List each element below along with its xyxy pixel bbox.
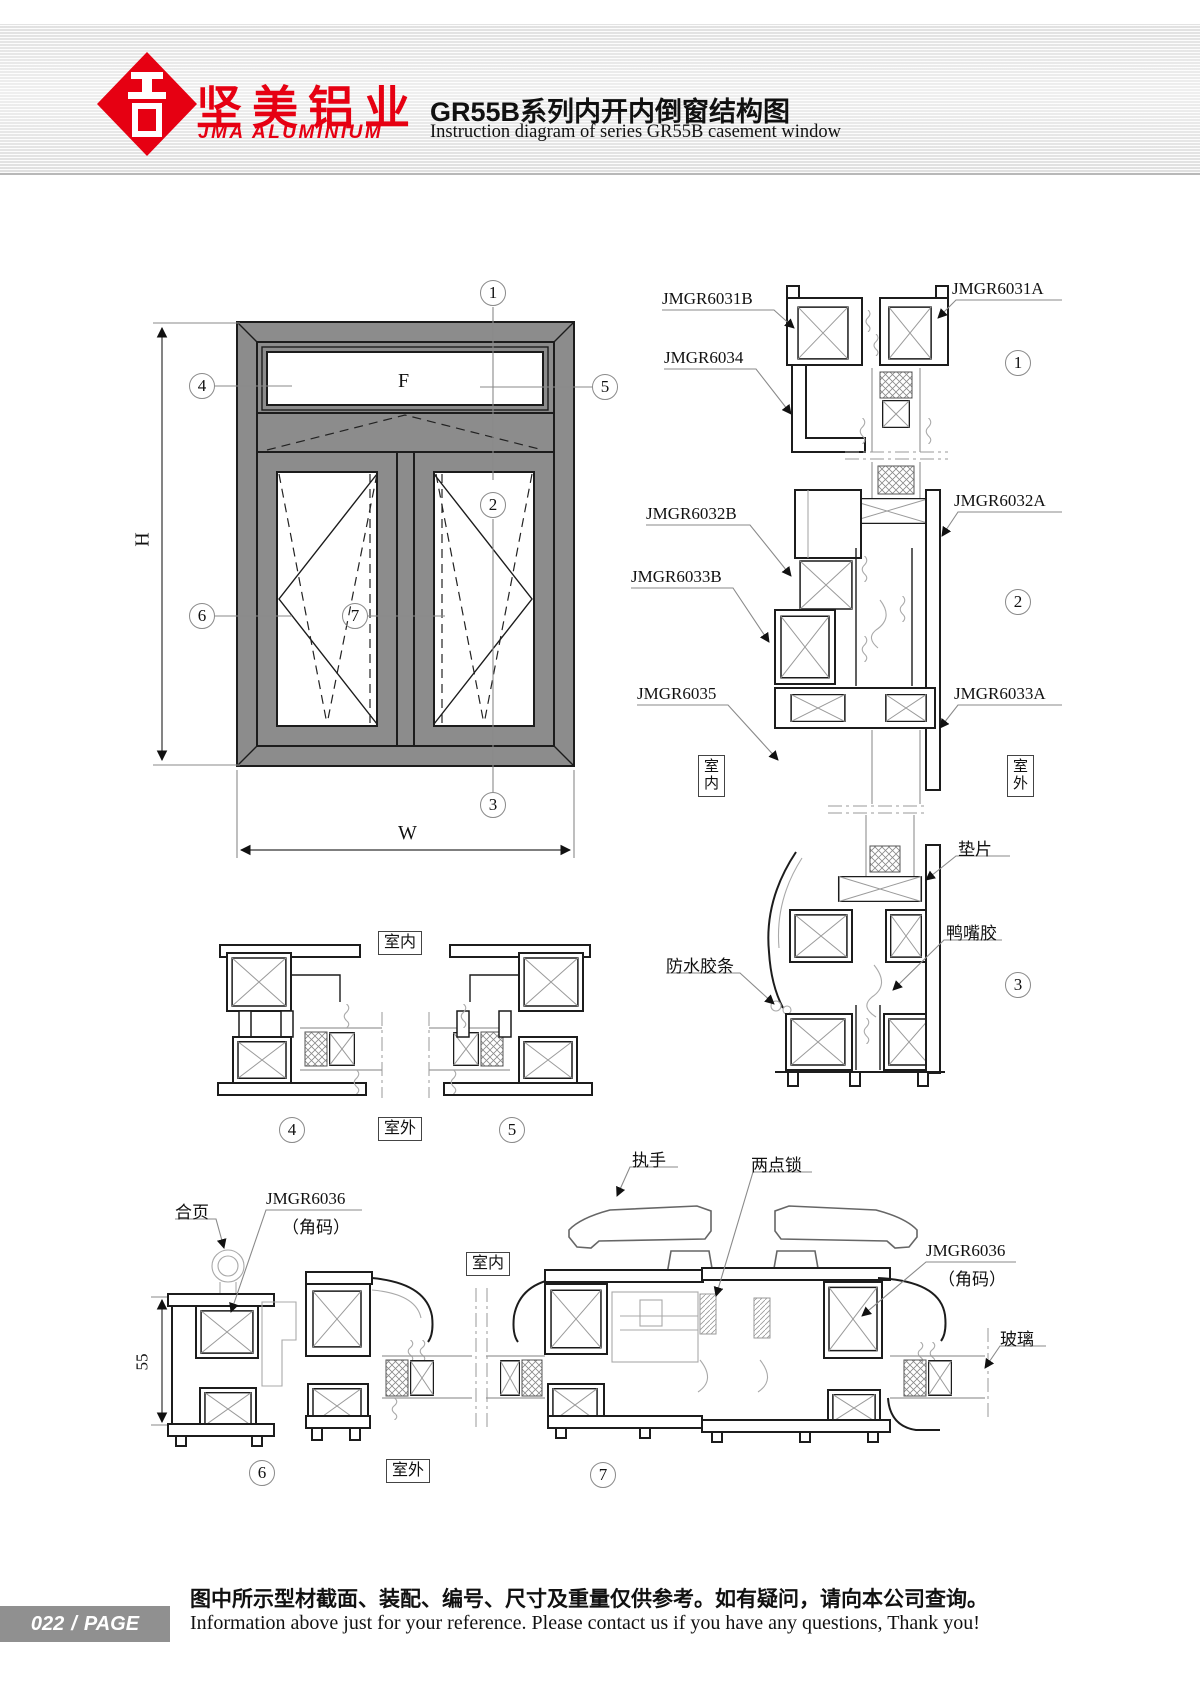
hinge-barrel xyxy=(212,1250,244,1282)
part-label-jmgr6036: JMGR6036 xyxy=(266,1189,345,1209)
outdoor-label: 室外 xyxy=(386,1459,430,1483)
part-label-jmgr6033b: JMGR6033B xyxy=(631,567,722,587)
section-5-number: 5 xyxy=(499,1117,525,1143)
section-1-drawing xyxy=(787,286,948,452)
dim-width-label: W xyxy=(398,822,417,845)
section-7-drawing xyxy=(486,1206,985,1442)
outdoor-label: 室外 xyxy=(378,1117,422,1141)
callout-4: 4 xyxy=(189,373,215,399)
page-label: PAGE xyxy=(84,1613,139,1636)
center-gasket xyxy=(871,600,886,648)
diagram-canvas xyxy=(0,0,1200,1697)
part-label-jmgr6031a: JMGR6031A xyxy=(952,279,1044,299)
left-sash-glass xyxy=(277,472,377,726)
part-label-jmgr6031b: JMGR6031B xyxy=(662,289,753,309)
part-label-jmgr6036: JMGR6036 xyxy=(926,1241,1005,1261)
callout-3: 3 xyxy=(480,792,506,818)
part-label-jmgr6035: JMGR6035 xyxy=(637,684,716,704)
part-label-corner-sub: （角码） xyxy=(282,1213,350,1238)
part-label-gasket: 垫片 xyxy=(958,835,992,860)
sash-cover-curve xyxy=(372,1278,433,1342)
section-5-drawing xyxy=(429,945,592,1095)
part-label-hinge: 合页 xyxy=(175,1198,209,1223)
callout-5: 5 xyxy=(592,374,618,400)
callout-1: 1 xyxy=(480,280,506,306)
lock-housing xyxy=(612,1292,698,1362)
part-label-jmgr6033a: JMGR6033A xyxy=(954,684,1046,704)
part-label-glass: 玻璃 xyxy=(1000,1325,1034,1350)
indoor-label: 室内 xyxy=(698,755,725,797)
indoor-label: 室内 xyxy=(378,931,422,955)
callout-7: 7 xyxy=(342,603,368,629)
page-number: 022 xyxy=(31,1613,64,1636)
footer-note-cn: 图中所示型材截面、装配、编号、尺寸及重量仅供参考。如有疑问，请向本公司查询。 xyxy=(190,1583,988,1613)
part-label-waterproof: 防水胶条 xyxy=(666,952,734,977)
corner-connector xyxy=(262,1302,296,1386)
outdoor-label: 室外 xyxy=(1007,755,1034,797)
section-2-drawing xyxy=(775,462,940,804)
indoor-label: 室内 xyxy=(466,1252,510,1276)
section-2-number: 2 xyxy=(1005,589,1031,615)
footer-note-en: Information above just for your referenc… xyxy=(190,1612,980,1635)
lock-point xyxy=(700,1294,716,1334)
section-4-number: 4 xyxy=(279,1117,305,1143)
page-number-badge: 022 / PAGE xyxy=(0,1606,170,1642)
catalog-page: 坚美铝业 JMA ALUMINIUM GR55B系列内开内倒窗结构图 Instr… xyxy=(0,0,1200,1697)
part-label-two-point-lock: 两点锁 xyxy=(751,1151,802,1176)
part-label-jmgr6032b: JMGR6032B xyxy=(646,504,737,524)
lock-point xyxy=(754,1298,770,1338)
callout-2: 2 xyxy=(480,492,506,518)
callout-6: 6 xyxy=(189,603,215,629)
part-label-jmgr6034: JMGR6034 xyxy=(664,348,743,368)
dim-55-label: 55 xyxy=(133,1354,153,1371)
section-7-number: 7 xyxy=(590,1462,616,1488)
section-4-drawing xyxy=(218,945,382,1095)
dim-height-label: H xyxy=(132,532,155,546)
glazing-bead-profile xyxy=(792,365,865,452)
part-label-jmgr6032a: JMGR6032A xyxy=(954,491,1046,511)
handle-left xyxy=(569,1206,714,1280)
section-3-number: 3 xyxy=(1005,972,1031,998)
section-1-number: 1 xyxy=(1005,350,1031,376)
section-6-number: 6 xyxy=(249,1460,275,1486)
gasket-block xyxy=(839,877,922,902)
fixed-panel-label: F xyxy=(398,370,409,393)
section-3-drawing xyxy=(768,815,945,1086)
part-label-handle: 执手 xyxy=(632,1146,666,1171)
section-6-drawing xyxy=(168,1250,472,1446)
part-label-corner-sub: （角码） xyxy=(938,1265,1006,1290)
part-label-duckbill: 鸭嘴胶 xyxy=(946,919,997,944)
page-separator: / xyxy=(71,1613,77,1636)
